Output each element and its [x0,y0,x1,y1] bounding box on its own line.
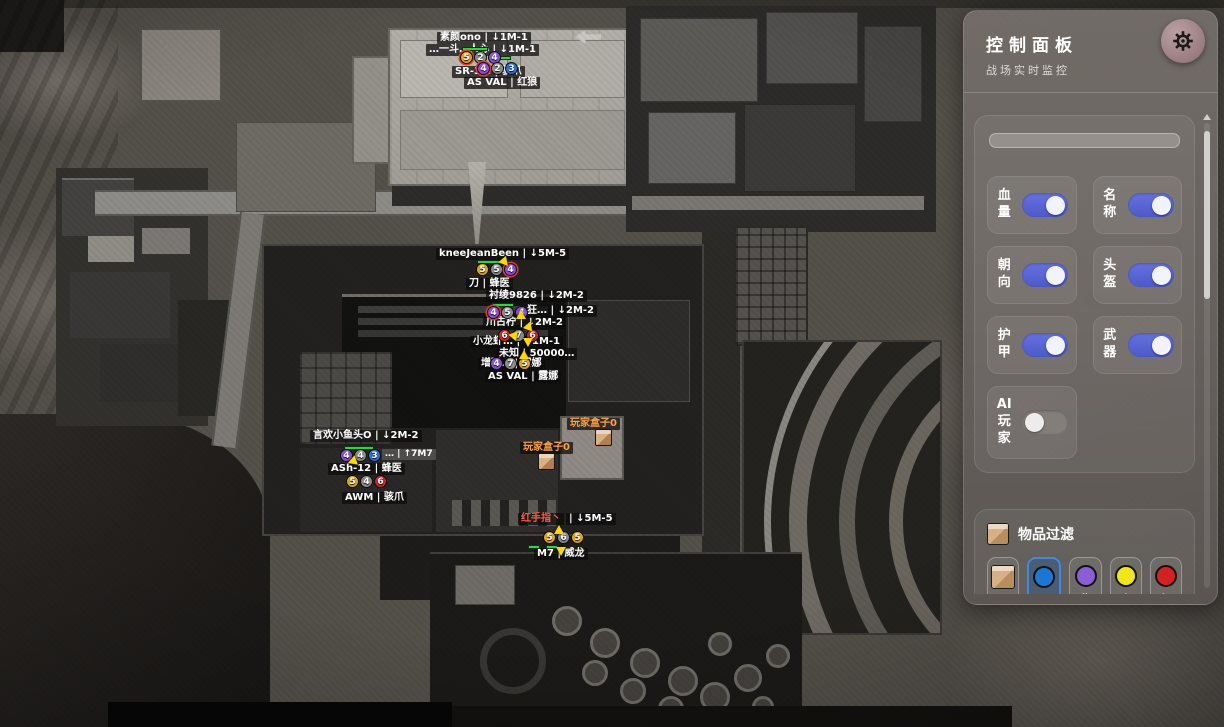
filter-红[interactable]: 红 [1150,557,1182,594]
player-label: AS VAL | 露娜 [485,371,561,383]
switch-knob [1152,196,1171,215]
direction-arrow-icon [523,338,533,347]
filter-蓝[interactable]: 蓝 [1027,557,1061,594]
gear-badge: 7 [504,357,517,370]
gear-badge-group: 554 [476,263,517,276]
screenshot-root: 素颜ono | ↓1M-1…一斗…人心 | ↓1M-1SR-3M | 骇爪AS … [0,0,1224,727]
gear-badge: 5 [571,531,584,544]
filter-金[interactable]: 金 [1110,557,1142,594]
switch-knob [1152,336,1171,355]
gear-badge-group: 546 [346,475,387,488]
panel-scroll-area[interactable]: 血量名称朝向头盔护甲武器AI玩家 物品过滤 全部蓝紫金红 ▾ [974,115,1195,594]
item-filter-card: 物品过滤 全部蓝紫金红 ▾ [974,509,1195,594]
filter-全部[interactable]: 全部 [987,557,1019,594]
panel-slider[interactable] [989,133,1180,148]
scrollbar-up-arrow-icon[interactable] [1203,114,1211,120]
panel-subtitle: 战场实时监控 [986,62,1197,78]
rarity-dot-icon [1115,565,1137,587]
scrollbar-thumb[interactable] [1204,131,1210,299]
toggle-AI玩家[interactable]: AI玩家 [987,386,1077,459]
toggle-label: 朝向 [995,258,1013,292]
gear-badge: 4 [360,475,373,488]
rarity-dot-icon [1155,565,1177,587]
toggle-label: 血量 [995,188,1013,222]
player-label: 红手指丶 [518,513,564,525]
switch-knob [1025,413,1044,432]
direction-arrow-icon [516,310,526,319]
box-icon [991,565,1015,589]
filter-label: 金 [1120,591,1131,594]
panel-divider [964,92,1217,93]
player-label: 玩家盒子0 [567,418,620,430]
filter-label: 全部 [992,593,1014,594]
player-label: | ↓5M-5 [566,513,616,525]
gear-badge: 5 [476,263,489,276]
toggle-switch[interactable] [1022,193,1068,217]
switch-knob [1152,266,1171,285]
switch-knob [1046,196,1065,215]
toggle-label: 武器 [1101,328,1119,362]
player-label: … | ↑7M7 [382,449,436,460]
toggle-switch[interactable] [1128,333,1174,357]
toggle-label: 名称 [1101,188,1119,222]
gear-badge: 4 [487,306,500,319]
gear-badge: 4 [477,62,490,75]
loot-box-icon [538,453,555,470]
direction-arrow-icon [519,350,529,359]
toggle-label: AI玩家 [995,397,1013,448]
filter-label: 蓝 [1039,592,1050,594]
toggle-grid: 血量名称朝向头盔护甲武器AI玩家 [987,176,1182,459]
toggle-护甲[interactable]: 护甲 [987,316,1077,374]
filter-label: 紫 [1080,591,1091,594]
gear-badge: 3 [505,62,518,75]
toggle-武器[interactable]: 武器 [1093,316,1183,374]
player-label: 言欢小鱼头O | ↓2M-2 [310,430,422,442]
player-label: AS VAL | 红狼 [464,77,540,89]
gear-badge: 5 [460,51,473,64]
direction-arrow-icon [554,525,564,534]
item-filter-title: 物品过滤 [1018,524,1074,544]
control-panel: 控制面板 战场实时监控 血量名称朝向头盔护甲武器AI [963,10,1218,605]
player-label: 素颜ono | ↓1M-1 [437,32,531,44]
filter-紫[interactable]: 紫 [1069,557,1101,594]
direction-arrow-icon [556,547,566,556]
gear-badge: 4 [490,357,503,370]
panel-scrollbar[interactable] [1204,123,1210,588]
toggle-switch[interactable] [1022,333,1068,357]
gear-badge: 2 [491,62,504,75]
gear-icon [1171,29,1195,53]
toggle-label: 护甲 [995,328,1013,362]
box-icon [987,523,1009,545]
rarity-dot-icon [1075,565,1097,587]
gear-badge: 3 [368,449,381,462]
player-label: 刀 | 蜂医 [466,278,513,290]
gear-badge-group: 423 [477,62,518,75]
gear-badge: 5 [346,475,359,488]
filter-label: 红 [1160,591,1171,594]
gear-badge: 6 [374,475,387,488]
rarity-dot-icon [1033,566,1055,588]
loot-box-icon [595,429,612,446]
filter-row: 全部蓝紫金红 [987,557,1182,594]
settings-button[interactable] [1161,19,1205,63]
toggle-朝向[interactable]: 朝向 [987,246,1077,304]
toggle-switch[interactable] [1022,410,1068,434]
toggle-switch[interactable] [1128,193,1174,217]
toggle-switch[interactable] [1022,263,1068,287]
switch-knob [1046,336,1065,355]
player-label: AWM | 骇爪 [342,492,407,504]
health-bar [528,545,540,549]
display-options-card: 血量名称朝向头盔护甲武器AI玩家 [974,115,1195,473]
toggle-头盔[interactable]: 头盔 [1093,246,1183,304]
player-label: 狂… | ↓2M-2 [524,305,597,317]
gear-badge: 5 [501,306,514,319]
panel-header: 控制面板 战场实时监控 [964,11,1217,92]
player-label: ASh-12 | 蜂医 [328,463,405,475]
toggle-label: 头盔 [1101,258,1119,292]
toggle-switch[interactable] [1128,263,1174,287]
player-label: 衬绫9826 | ↓2M-2 [486,290,587,302]
switch-knob [1046,266,1065,285]
item-filter-header: 物品过滤 [987,523,1182,545]
toggle-血量[interactable]: 血量 [987,176,1077,234]
toggle-名称[interactable]: 名称 [1093,176,1183,234]
